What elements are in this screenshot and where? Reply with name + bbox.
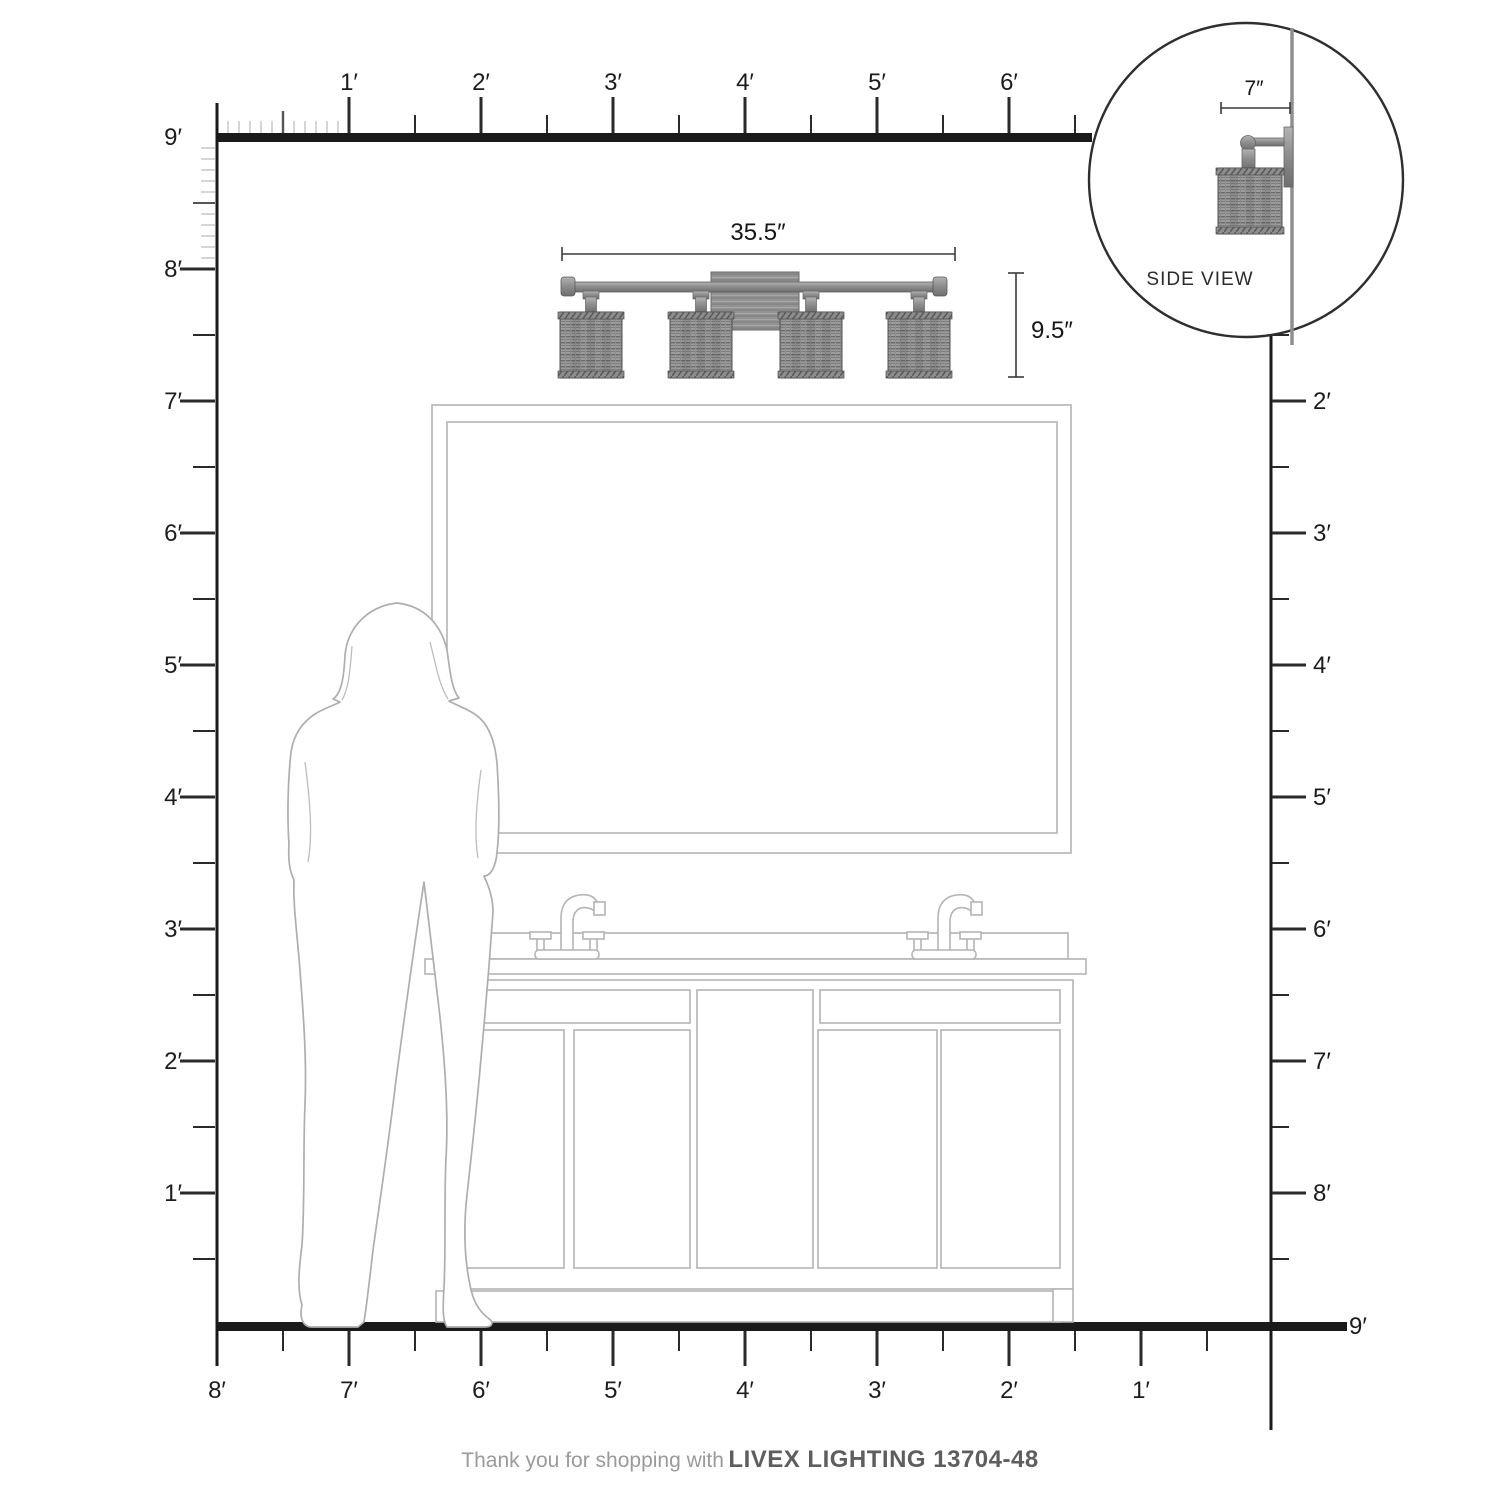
right-ruler-label: 2′ bbox=[1313, 388, 1331, 415]
faucet-handle-right-top bbox=[960, 932, 981, 939]
vanity-light-fixture: 35.5″ 9.5″ bbox=[558, 219, 1073, 378]
left-ruler-label: 4′ bbox=[164, 784, 182, 811]
fixture-width-label: 35.5″ bbox=[730, 219, 786, 246]
fixture-bar-cap-left bbox=[561, 277, 575, 296]
diagram-svg: 1′2′3′4′5′6′9′8′7′6′5′4′3′2′1′2′3′4′5′6′… bbox=[0, 0, 1500, 1500]
top-ruler-label: 2′ bbox=[472, 69, 490, 96]
top-ruler-label: 3′ bbox=[604, 69, 622, 96]
top-ruler-label: 4′ bbox=[736, 69, 754, 96]
bottom-ruler-label: 7′ bbox=[340, 1377, 358, 1404]
right-ruler-label: 5′ bbox=[1313, 784, 1331, 811]
right-ruler-label: 7′ bbox=[1313, 1048, 1331, 1075]
footer-brand-model: LIVEX LIGHTING 13704-48 bbox=[728, 1446, 1038, 1473]
vanity-drawer-left bbox=[460, 990, 690, 1023]
vanity-cabinet bbox=[425, 933, 1086, 1322]
mirror-outer-frame bbox=[432, 405, 1071, 853]
side-view-caption: SIDE VIEW bbox=[1146, 269, 1253, 290]
bottom-ruler-label: 2′ bbox=[1000, 1377, 1018, 1404]
bottom-ruler-label: 5′ bbox=[604, 1377, 622, 1404]
right-ruler-label: 8′ bbox=[1313, 1180, 1331, 1207]
right-ruler-floor-label: 9′ bbox=[1349, 1313, 1367, 1340]
fixture-height-dimension bbox=[1008, 273, 1024, 377]
side-view-inset: 7″ SIDE VIEW bbox=[1089, 23, 1403, 345]
mirror bbox=[432, 405, 1071, 853]
footer-thanks-text: Thank you for shopping with bbox=[461, 1449, 724, 1472]
fixture-height-label: 9.5″ bbox=[1031, 317, 1073, 344]
vanity-countertop bbox=[425, 959, 1086, 974]
bottom-ruler-label: 8′ bbox=[208, 1377, 226, 1404]
faucet-right bbox=[907, 895, 982, 959]
footer: Thank you for shopping with LIVEX LIGHTI… bbox=[0, 1446, 1500, 1474]
bottom-ruler-label: 4′ bbox=[736, 1377, 754, 1404]
left-ruler-label: 3′ bbox=[164, 916, 182, 943]
bottom-ruler-label: 1′ bbox=[1132, 1377, 1150, 1404]
vanity-drawer-right bbox=[820, 990, 1060, 1023]
vanity-center-panel bbox=[697, 990, 813, 1268]
faucet-base bbox=[912, 950, 976, 959]
top-ruler-line bbox=[217, 133, 1092, 142]
vanity-door-4 bbox=[941, 1030, 1060, 1268]
diagram-canvas: 1′2′3′4′5′6′9′8′7′6′5′4′3′2′1′2′3′4′5′6′… bbox=[0, 0, 1500, 1500]
vanity-door-2 bbox=[574, 1030, 690, 1268]
vanity-door-3 bbox=[818, 1030, 937, 1268]
mirror-inner-frame bbox=[447, 422, 1057, 833]
bottom-ruler-label: 6′ bbox=[472, 1377, 490, 1404]
fixture-bar bbox=[568, 282, 940, 292]
right-ruler-label: 4′ bbox=[1313, 652, 1331, 679]
fixture-bar-cap-right bbox=[933, 277, 947, 296]
right-ruler-label: 3′ bbox=[1313, 520, 1331, 547]
vanity-leg-right bbox=[1053, 1289, 1073, 1322]
bottom-ruler-label: 3′ bbox=[868, 1377, 886, 1404]
faucet-spout-tip bbox=[971, 902, 982, 915]
faucet-handle-right-top bbox=[583, 932, 604, 939]
left-ruler-label: 1′ bbox=[164, 1180, 182, 1207]
faucet-handle-left-top bbox=[530, 932, 551, 939]
bottom-ruler-line bbox=[217, 1322, 1347, 1331]
left-ruler-label: 2′ bbox=[164, 1048, 182, 1075]
fixture-width-dimension bbox=[562, 247, 955, 261]
faucet-base bbox=[535, 950, 599, 959]
faucet-left bbox=[530, 895, 605, 959]
left-ruler-label: 8′ bbox=[164, 256, 182, 283]
top-ruler-label: 6′ bbox=[1000, 69, 1018, 96]
right-ruler-label: 6′ bbox=[1313, 916, 1331, 943]
side-view-depth-label: 7″ bbox=[1244, 77, 1264, 100]
top-ruler-label: 5′ bbox=[868, 69, 886, 96]
faucet-spout-tip bbox=[594, 902, 605, 915]
faucet-handle-left-top bbox=[907, 932, 928, 939]
left-ruler-label: 6′ bbox=[164, 520, 182, 547]
left-ruler-label: 9′ bbox=[164, 124, 182, 151]
top-ruler-label: 1′ bbox=[340, 69, 358, 96]
left-ruler-label: 7′ bbox=[164, 388, 182, 415]
left-ruler-line bbox=[216, 103, 219, 1366]
left-ruler-label: 5′ bbox=[164, 652, 182, 679]
vanity-kick-base bbox=[436, 1291, 1060, 1322]
